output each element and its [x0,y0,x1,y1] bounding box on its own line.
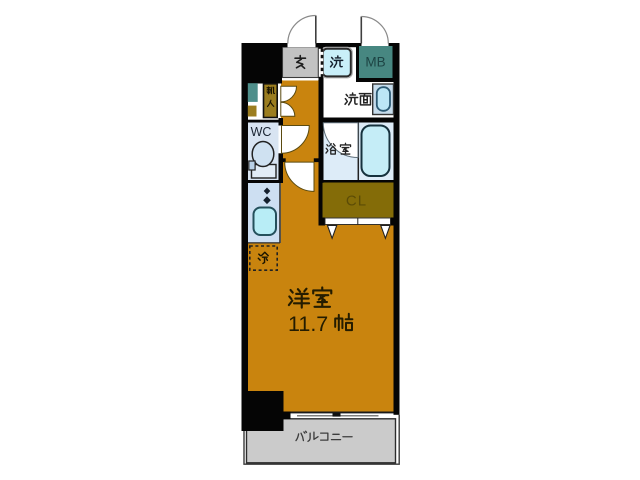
svg-text:11.7: 11.7 [288,312,328,336]
svg-text:CL: CL [346,193,367,210]
svg-text:WC: WC [251,125,272,139]
svg-text:MB: MB [365,55,385,70]
